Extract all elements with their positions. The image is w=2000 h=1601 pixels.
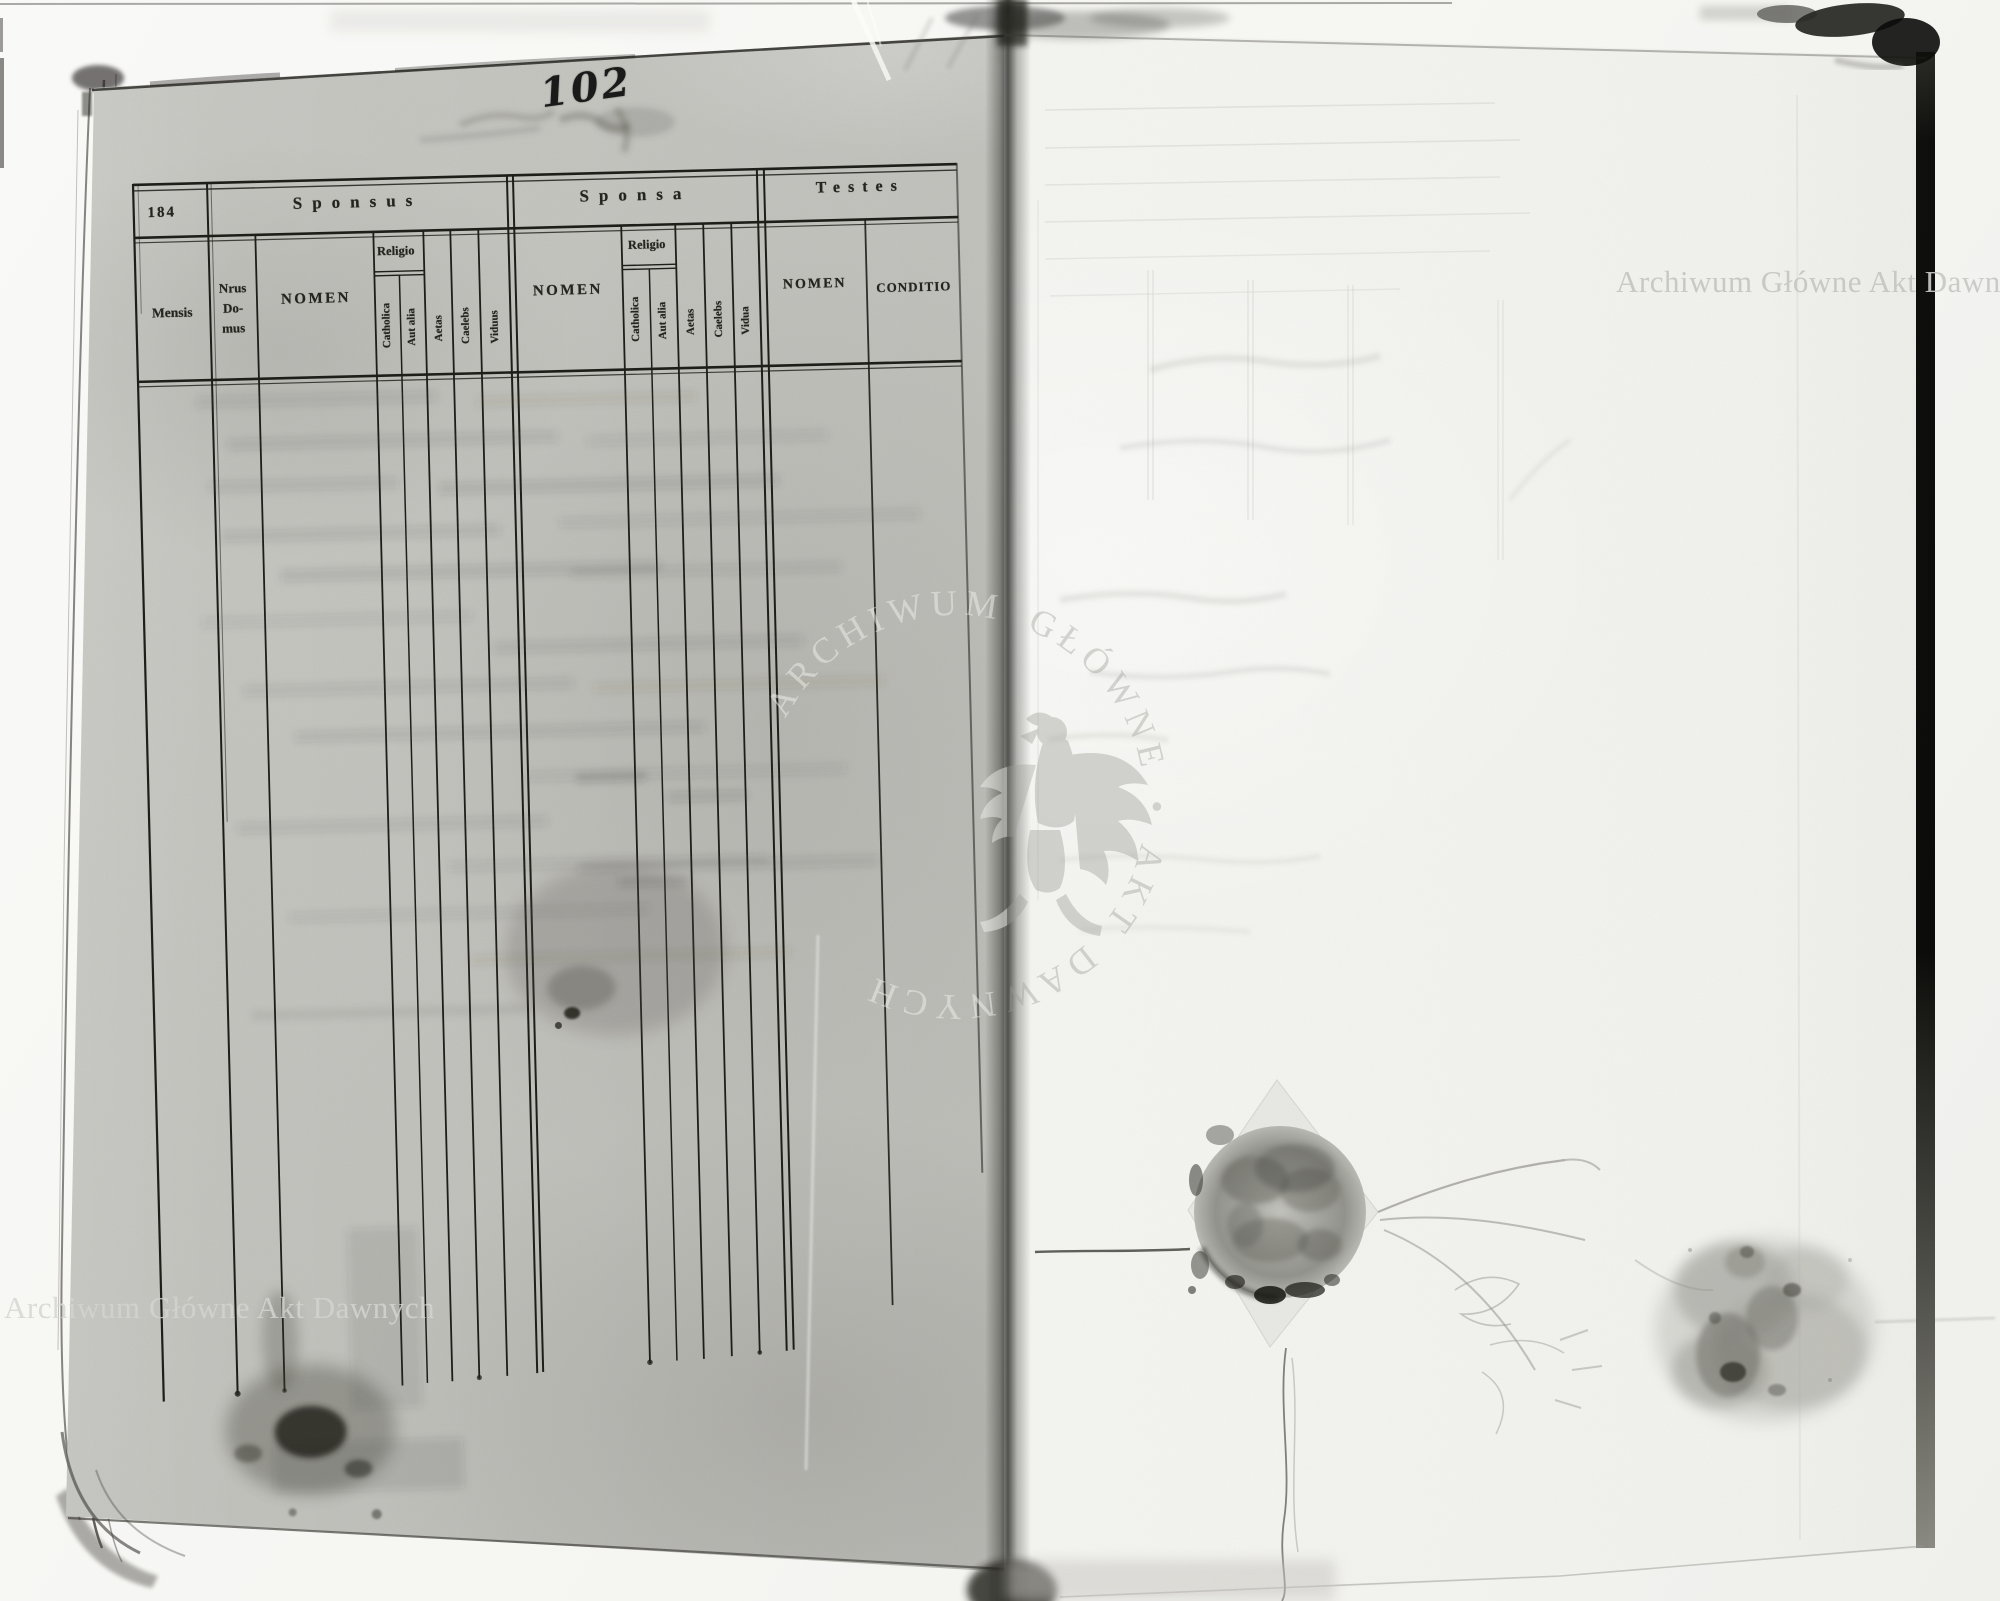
watermark-text-top-right: Archiwum Główne Akt Dawnych — [1616, 264, 2000, 300]
archival-book-scan: 184 Sponsus Sponsa Testes Mensis Nrus Do… — [0, 0, 2000, 1601]
watermark-text-bottom-left: Archiwum Główne Akt Dawnych — [4, 1290, 435, 1326]
watermark-seal-emblem: ARCHIWUM GŁÓWNE • AKT DAWNYCH — [700, 550, 1210, 1060]
